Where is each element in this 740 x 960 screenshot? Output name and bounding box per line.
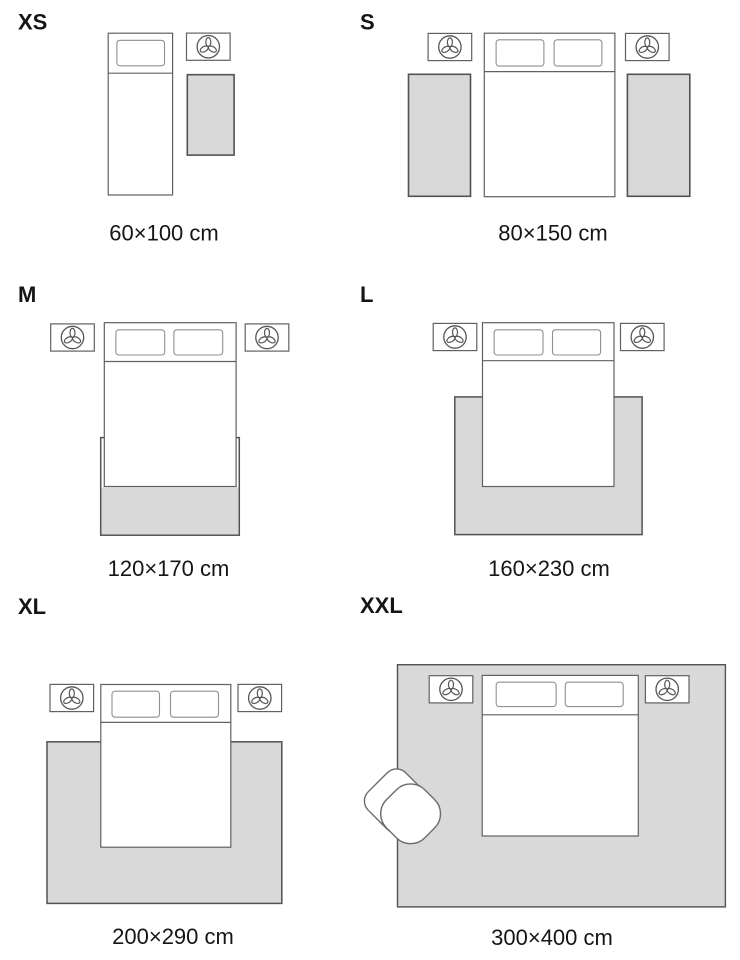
svg-text:XL: XL [18, 594, 46, 619]
svg-text:S: S [360, 10, 375, 35]
svg-text:L: L [360, 282, 373, 307]
svg-text:120×170 cm: 120×170 cm [108, 556, 230, 581]
svg-text:XXL: XXL [360, 593, 403, 618]
svg-text:60×100 cm: 60×100 cm [109, 221, 218, 246]
svg-text:XS: XS [18, 10, 47, 35]
svg-text:200×290 cm: 200×290 cm [112, 924, 234, 949]
svg-text:M: M [18, 282, 36, 307]
svg-text:80×150 cm: 80×150 cm [498, 221, 607, 246]
svg-text:300×400 cm: 300×400 cm [491, 925, 613, 950]
svg-text:160×230 cm: 160×230 cm [488, 556, 610, 581]
